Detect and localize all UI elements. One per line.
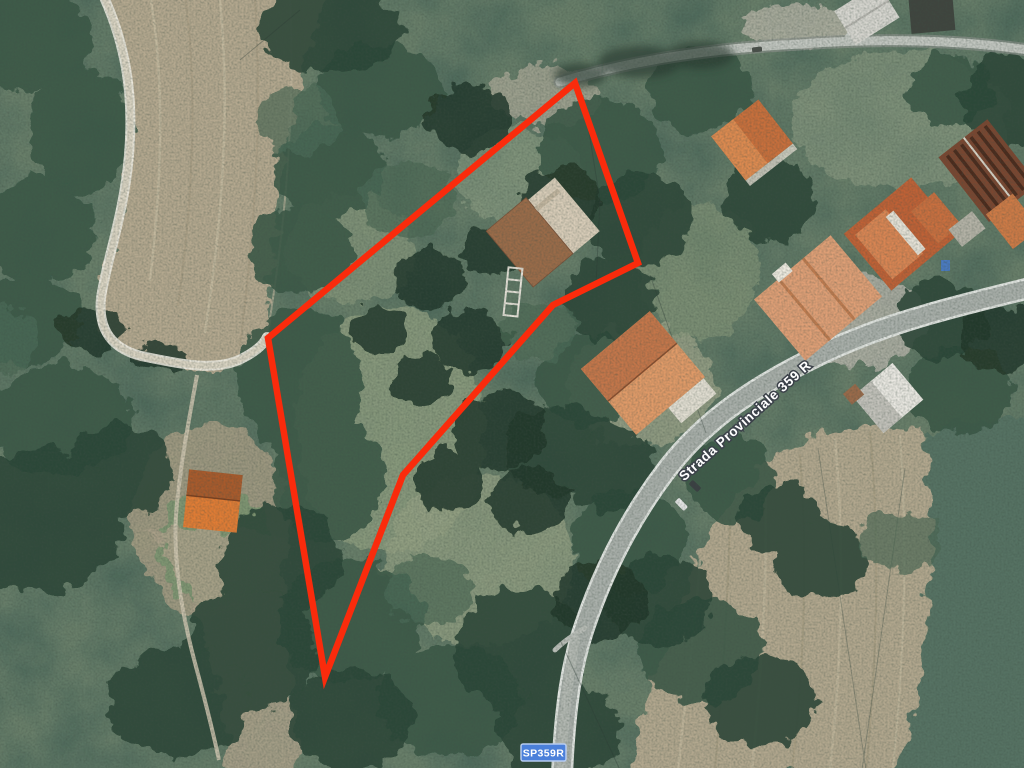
map-canvas: Strada Provinciale 359 R SP359R	[0, 0, 1024, 768]
photo-grain	[0, 0, 1024, 768]
route-badge-text: SP359R	[523, 748, 565, 760]
satellite-map-view: Strada Provinciale 359 R SP359R	[0, 0, 1024, 768]
route-badge: SP359R	[521, 744, 566, 761]
